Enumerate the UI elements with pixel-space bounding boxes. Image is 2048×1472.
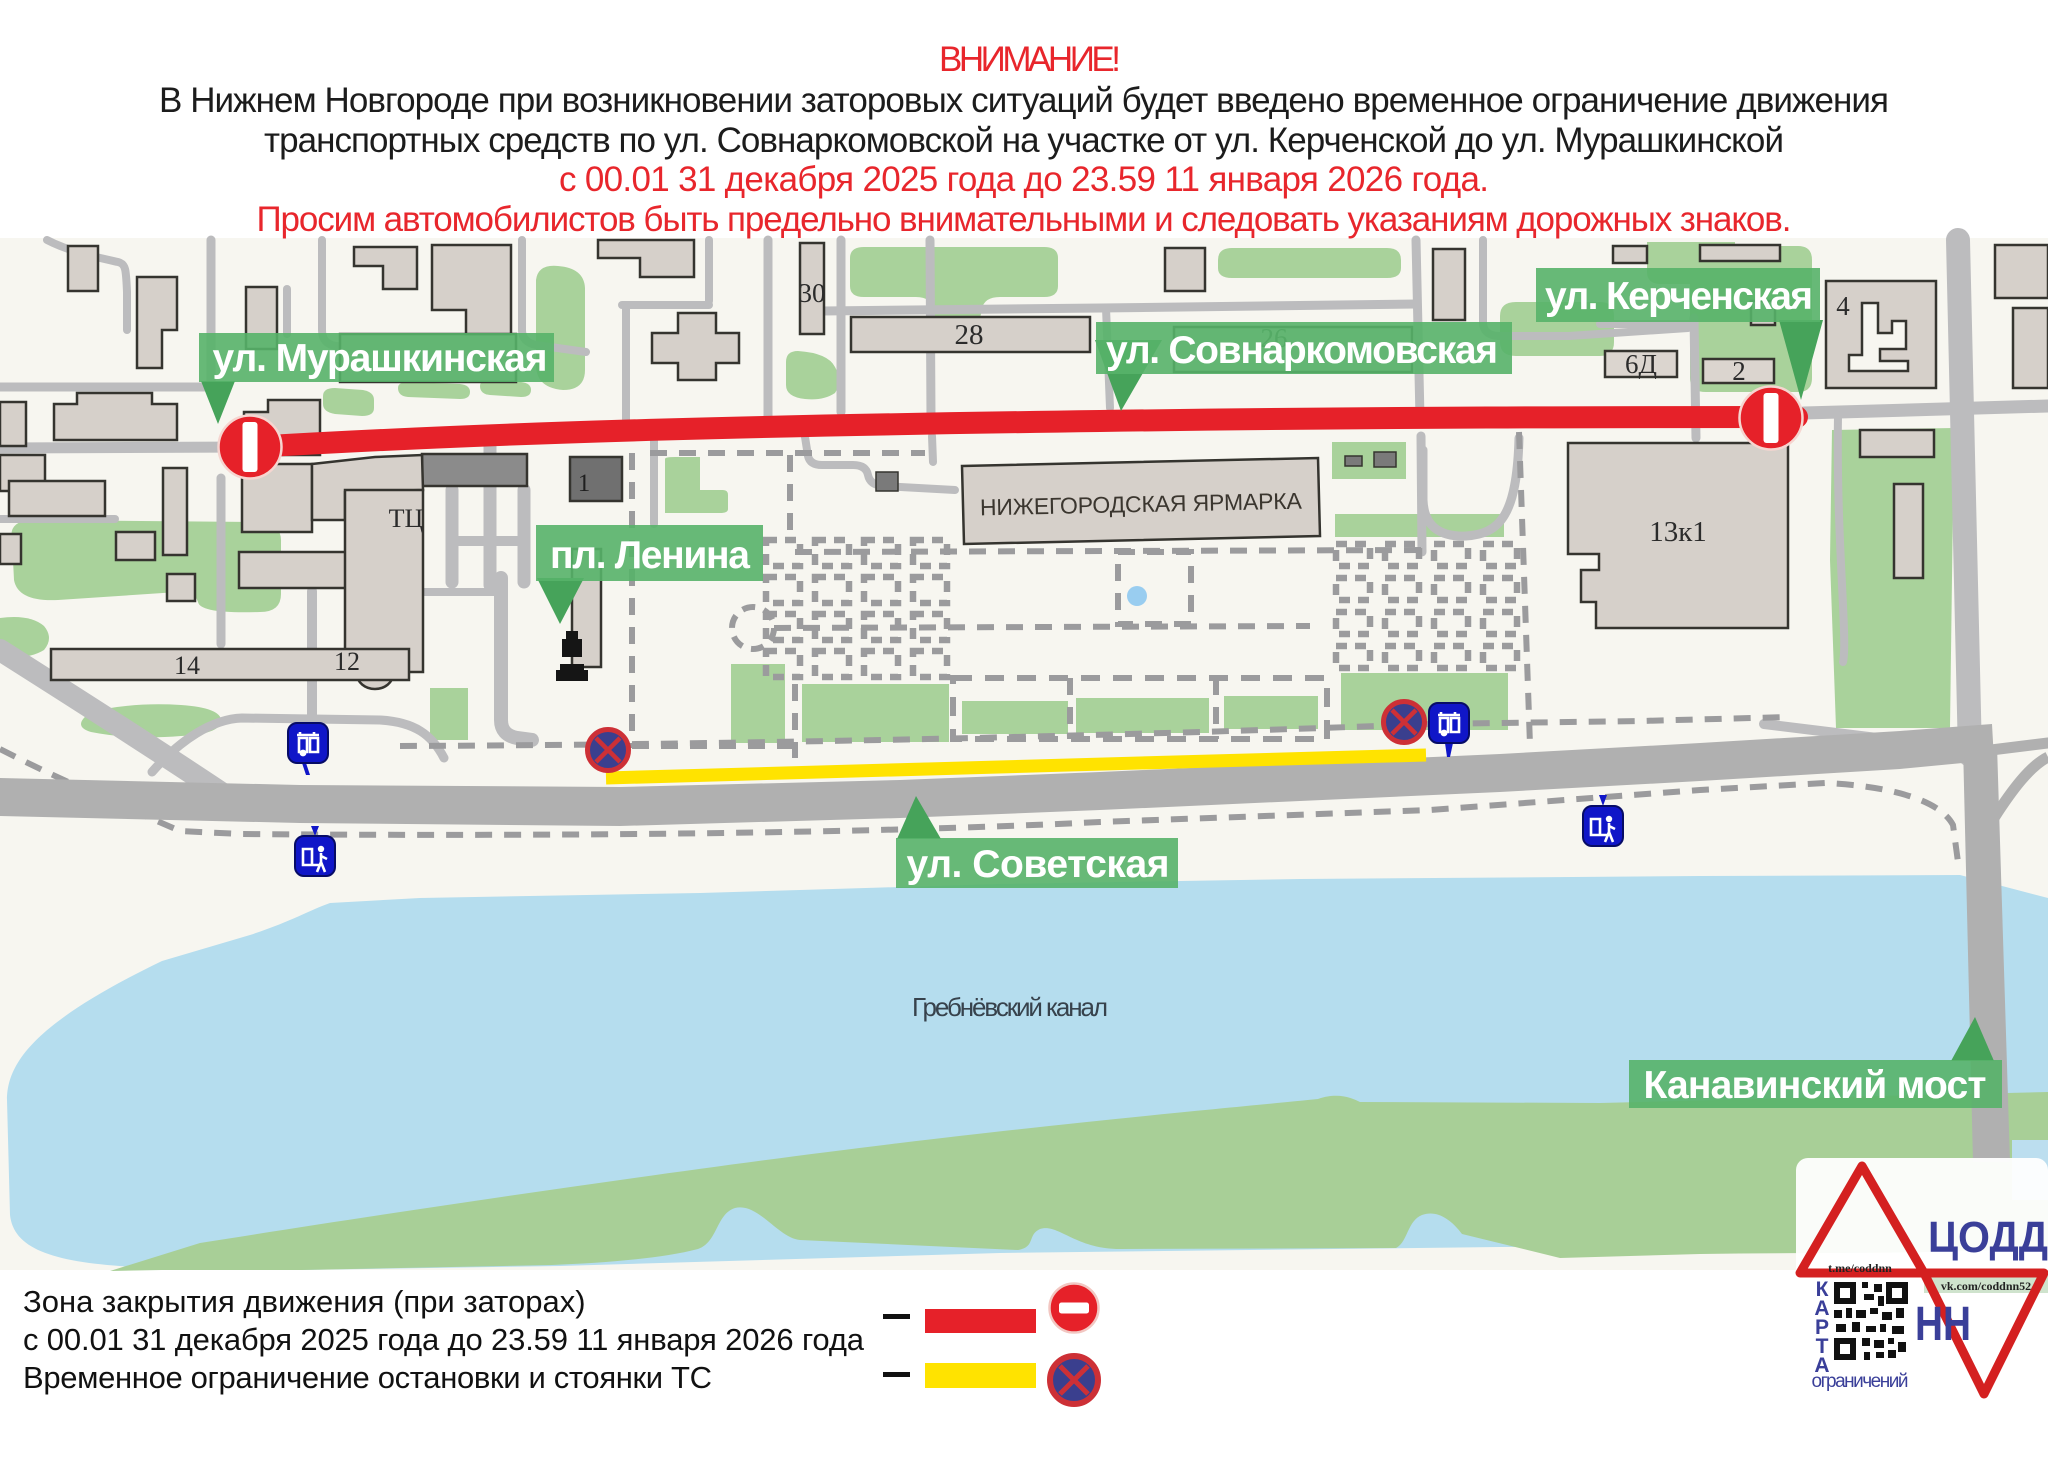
- svg-text:пл. Ленина: пл. Ленина: [550, 534, 750, 577]
- svg-text:с 00.01 31 декабря 2025 года д: с 00.01 31 декабря 2025 года до 23.59 11…: [23, 1322, 865, 1357]
- svg-text:4: 4: [1836, 291, 1850, 321]
- svg-text:ул. Советская: ул. Советская: [907, 843, 1170, 886]
- svg-text:Временное ограничение остановк: Временное ограничение остановки и стоянк…: [23, 1360, 712, 1395]
- svg-text:ТЦ: ТЦ: [389, 504, 424, 533]
- svg-text:с 00.01 31 декабря 2025 года д: с 00.01 31 декабря 2025 года до 23.59 11…: [559, 160, 1489, 199]
- svg-text:Канавинский мост: Канавинский мост: [1644, 1064, 1987, 1107]
- svg-text:ул. Совнаркомовская: ул. Совнаркомовская: [1106, 329, 1498, 372]
- svg-text:НН: НН: [1915, 1298, 1971, 1351]
- svg-text:28: 28: [955, 319, 984, 351]
- svg-text:t.me/coddnn: t.me/coddnn: [1828, 1261, 1892, 1275]
- svg-text:1: 1: [578, 470, 591, 497]
- svg-text:транспортных средств по ул. Со: транспортных средств по ул. Совнаркомовс…: [264, 121, 1784, 160]
- svg-text:12: 12: [334, 647, 360, 676]
- svg-text:30: 30: [799, 278, 826, 308]
- svg-text:Просим автомобилистов быть пре: Просим автомобилистов быть предельно вни…: [257, 200, 1792, 239]
- svg-text:2: 2: [1732, 356, 1746, 386]
- svg-text:Гребнёвский канал: Гребнёвский канал: [912, 992, 1108, 1022]
- svg-text:13к1: 13к1: [1649, 516, 1707, 548]
- svg-text:vk.com/coddnn52: vk.com/coddnn52: [1941, 1279, 2031, 1293]
- svg-text:ограничений: ограничений: [1812, 1371, 1909, 1392]
- svg-text:В Нижнем Новгороде при возникн: В Нижнем Новгороде при возникновении зат…: [159, 81, 1889, 120]
- svg-text:ул. Керченская: ул. Керченская: [1545, 275, 1813, 318]
- svg-text:ул. Мурашкинская: ул. Мурашкинская: [213, 337, 548, 380]
- svg-text:14: 14: [174, 651, 200, 680]
- svg-text:ВНИМАНИЕ!: ВНИМАНИЕ!: [939, 40, 1121, 79]
- svg-text:6Д: 6Д: [1625, 349, 1657, 379]
- svg-text:ЦОДД: ЦОДД: [1928, 1213, 2048, 1262]
- svg-text:Зона закрытия движения (при за: Зона закрытия движения (при заторах): [23, 1284, 586, 1319]
